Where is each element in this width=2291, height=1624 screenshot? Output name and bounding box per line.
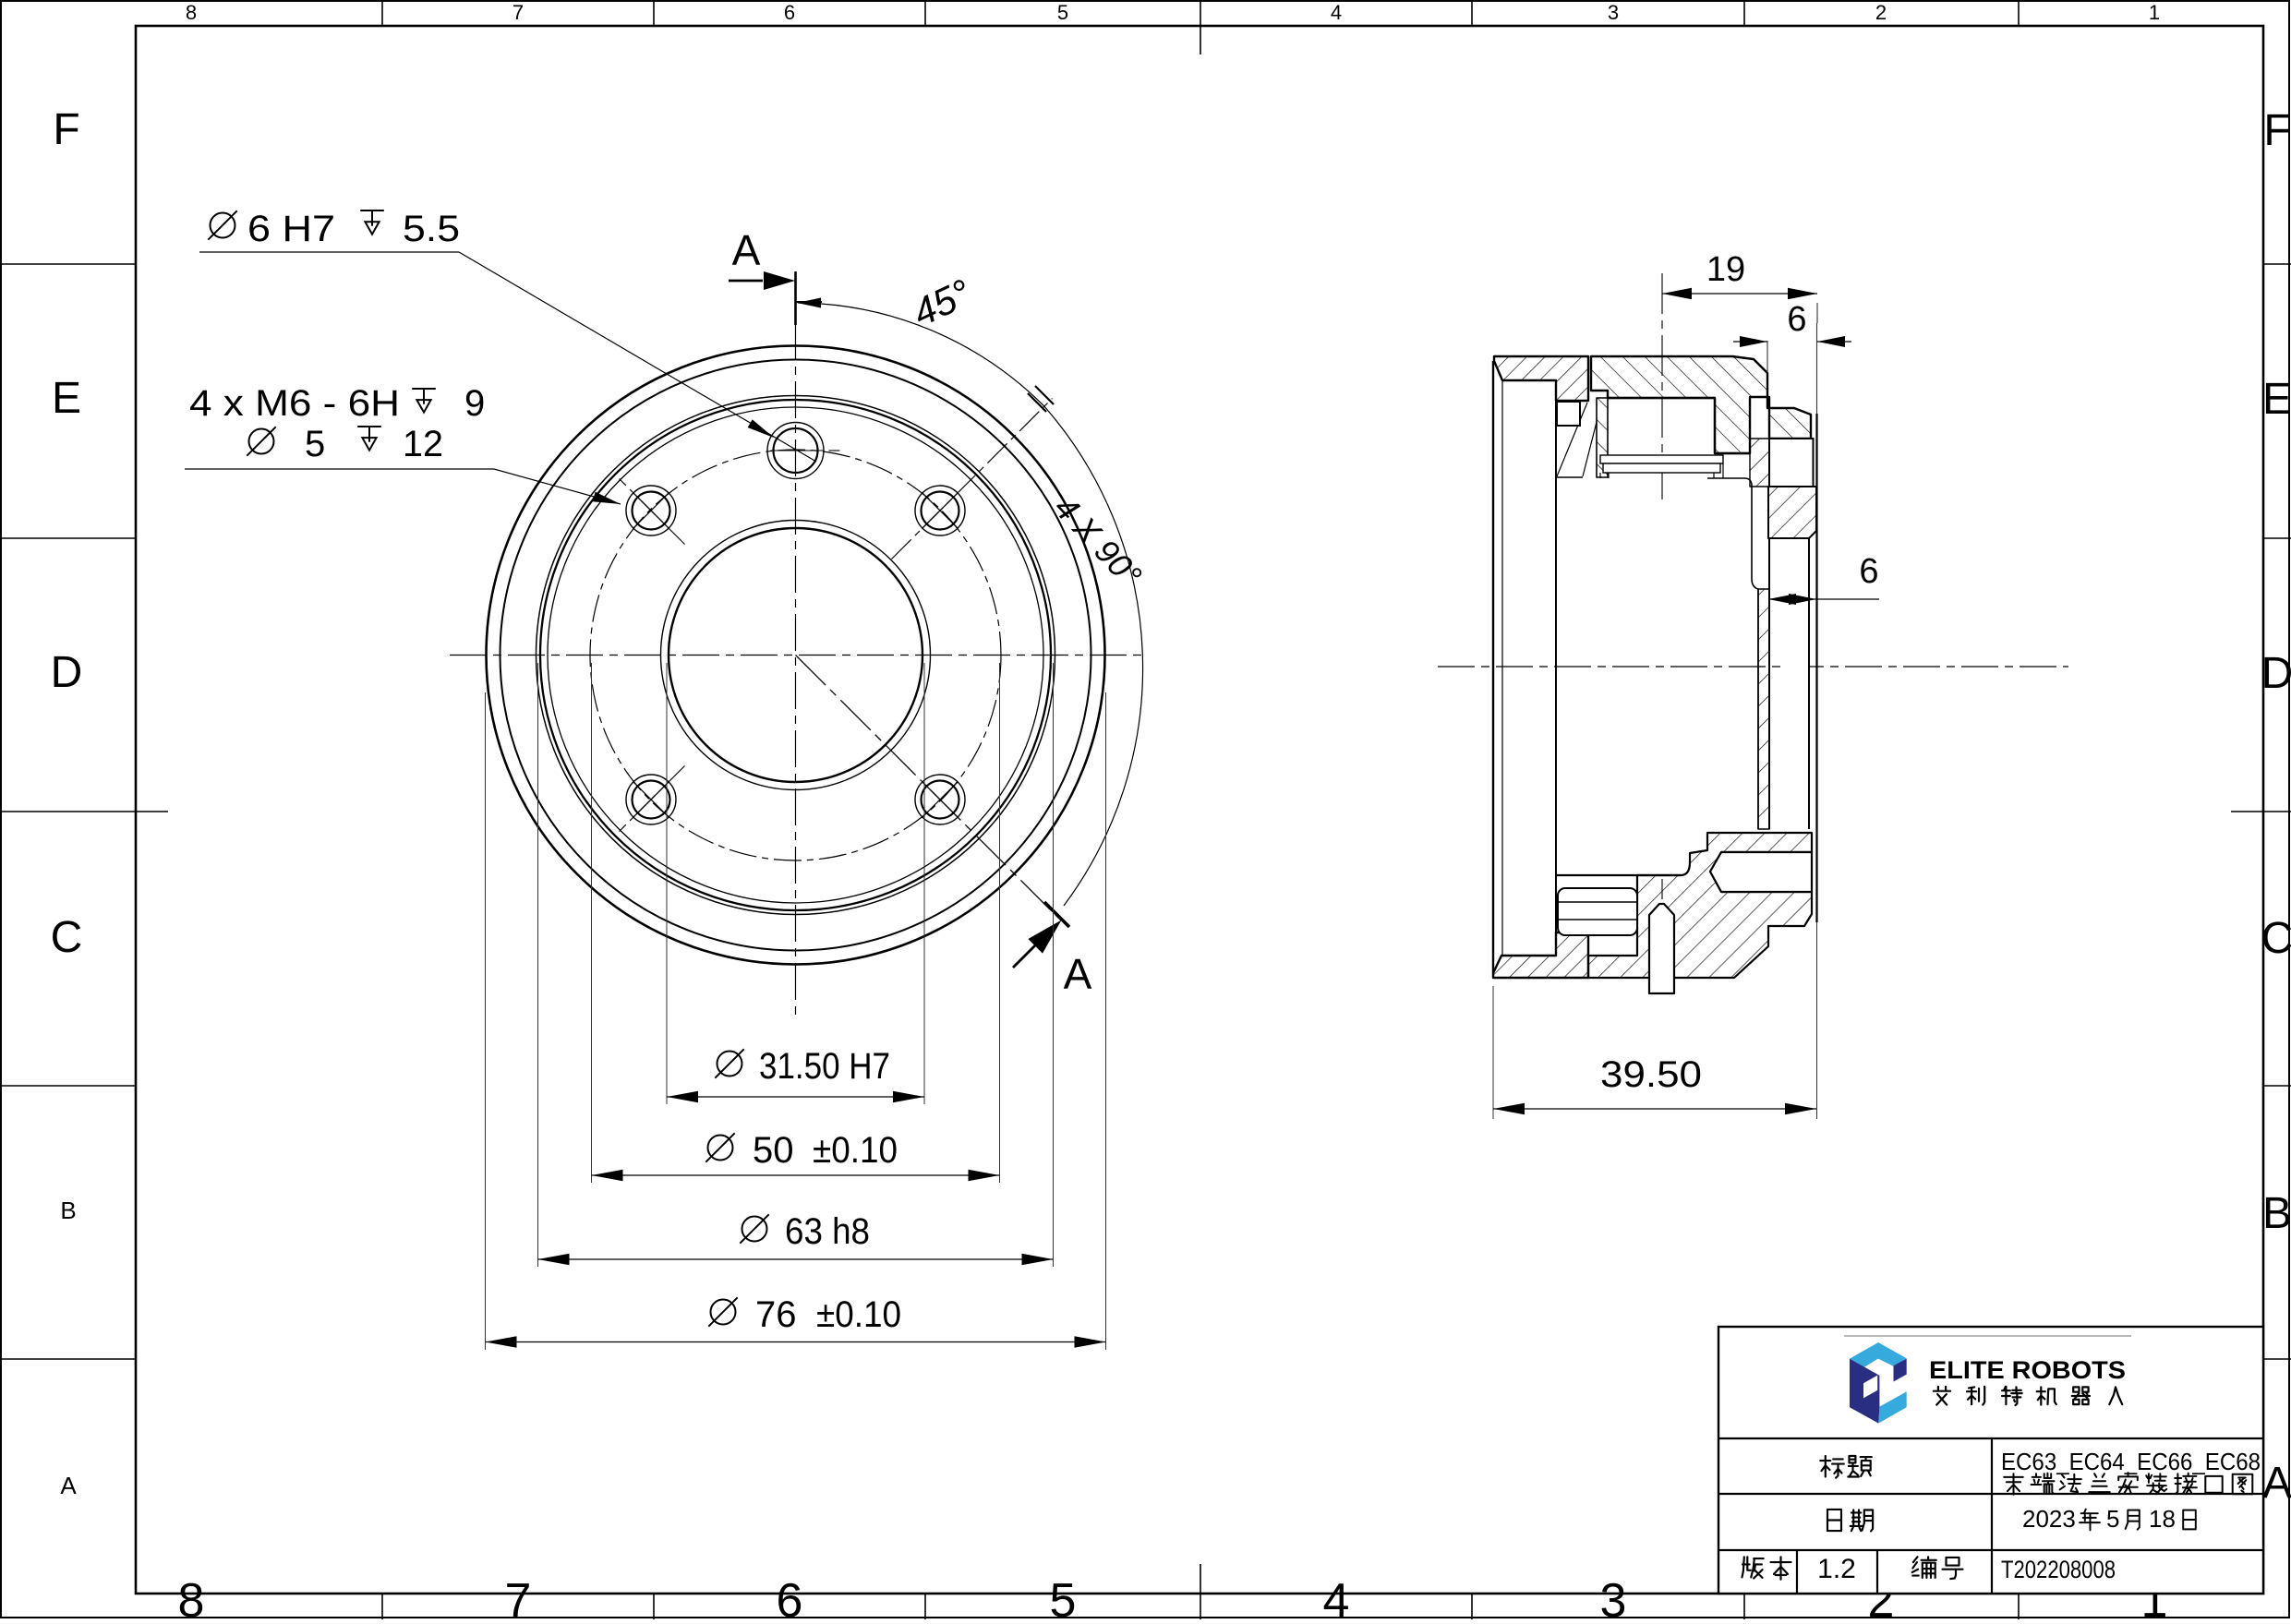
svg-text:4: 4 [1323, 1574, 1350, 1619]
svg-text:76: 76 [755, 1294, 797, 1335]
svg-text:18: 18 [2149, 1505, 2176, 1533]
svg-text:5: 5 [305, 424, 325, 464]
svg-text:F: F [53, 105, 79, 154]
svg-text:3: 3 [1600, 1574, 1627, 1619]
svg-text:6: 6 [1787, 300, 1806, 339]
svg-text:E: E [52, 374, 81, 423]
svg-text:T202208008: T202208008 [2001, 1556, 2116, 1583]
svg-text:1.2: 1.2 [1817, 1554, 1856, 1584]
svg-text:8: 8 [178, 1574, 205, 1619]
svg-text:EC63_EC64_EC66_EC68: EC63_EC64_EC66_EC68 [2001, 1448, 2261, 1475]
svg-text:63 h8: 63 h8 [785, 1211, 870, 1252]
svg-text:4: 4 [1331, 1, 1342, 24]
svg-text:9: 9 [464, 383, 485, 424]
svg-text:F: F [2263, 106, 2290, 155]
svg-text:B: B [60, 1197, 76, 1224]
svg-text:A: A [2262, 1459, 2291, 1508]
svg-text:A: A [1064, 950, 1092, 998]
svg-text:7: 7 [512, 1, 524, 24]
svg-text:D: D [2261, 649, 2291, 698]
svg-text:31.50 H7: 31.50 H7 [759, 1046, 890, 1087]
svg-text:A: A [60, 1472, 77, 1499]
svg-text:E: E [2262, 375, 2291, 424]
svg-text:±0.10: ±0.10 [816, 1294, 901, 1335]
svg-text:D: D [51, 648, 83, 697]
svg-text:39.50: 39.50 [1600, 1054, 1702, 1095]
svg-text:C: C [51, 913, 83, 962]
svg-text:12: 12 [403, 424, 443, 464]
svg-text:C: C [2261, 914, 2291, 963]
svg-text:4 x M6 - 6H: 4 x M6 - 6H [189, 383, 400, 424]
svg-text:5: 5 [1050, 1574, 1077, 1619]
svg-text:50: 50 [753, 1130, 794, 1171]
svg-text:2: 2 [1875, 1, 1887, 24]
svg-text:±0.10: ±0.10 [813, 1130, 898, 1171]
svg-text:2023: 2023 [2022, 1505, 2076, 1533]
svg-text:ELITE ROBOTS: ELITE ROBOTS [1929, 1356, 2126, 1384]
svg-text:1: 1 [2149, 1, 2160, 24]
svg-text:6 H7: 6 H7 [247, 209, 335, 249]
svg-text:5.5: 5.5 [403, 209, 460, 249]
svg-text:A: A [732, 226, 761, 274]
svg-text:6: 6 [784, 1, 795, 24]
svg-text:6: 6 [1859, 552, 1878, 591]
svg-text:8: 8 [186, 1, 197, 24]
svg-text:19: 19 [1706, 250, 1745, 289]
svg-text:5: 5 [2106, 1505, 2119, 1533]
svg-text:3: 3 [1608, 1, 1619, 24]
svg-text:7: 7 [505, 1574, 532, 1619]
svg-text:5: 5 [1057, 1, 1068, 24]
svg-text:B: B [2262, 1189, 2291, 1238]
svg-text:6: 6 [777, 1574, 803, 1619]
